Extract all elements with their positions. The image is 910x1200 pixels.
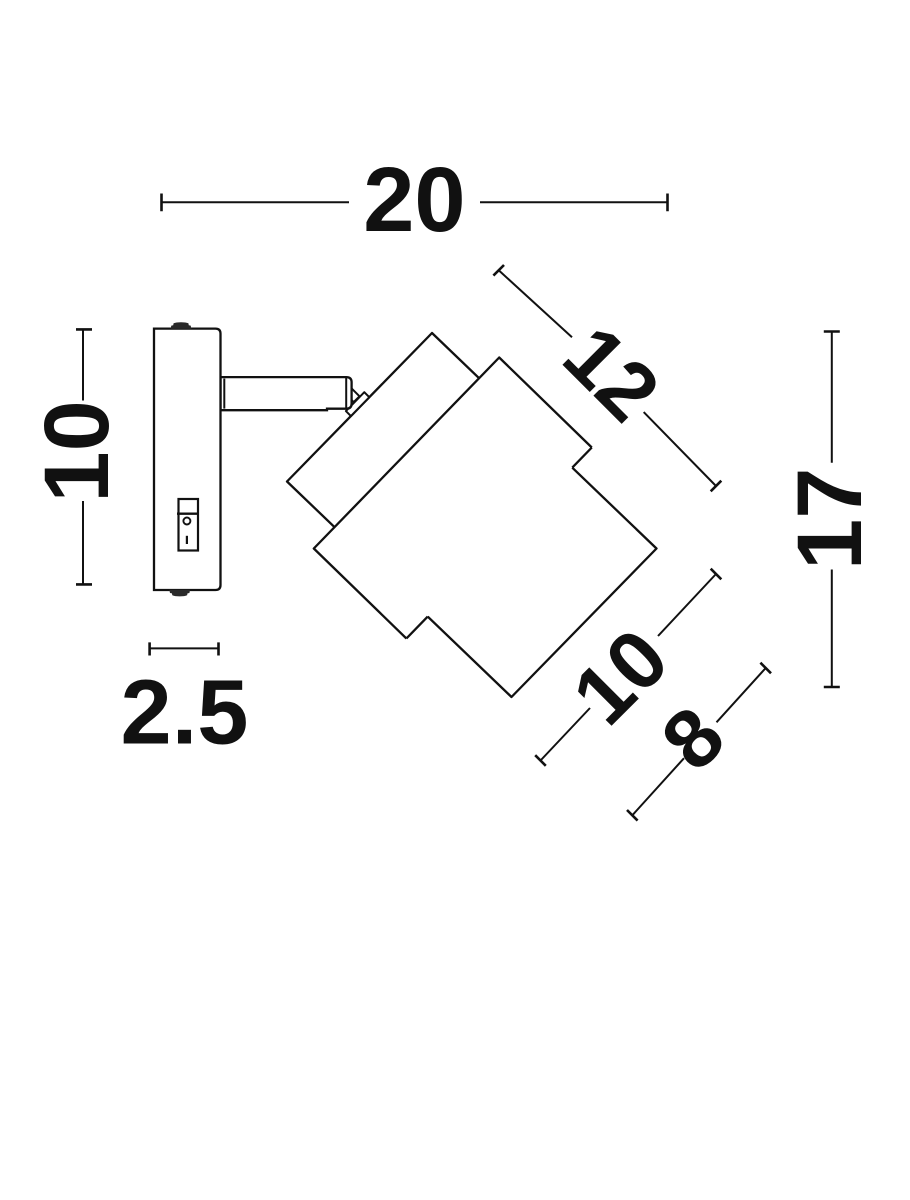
svg-text:2.5: 2.5 <box>121 662 249 764</box>
svg-text:12: 12 <box>546 308 677 439</box>
svg-text:20: 20 <box>363 149 465 251</box>
svg-text:10: 10 <box>26 400 128 502</box>
svg-text:17: 17 <box>779 468 881 570</box>
